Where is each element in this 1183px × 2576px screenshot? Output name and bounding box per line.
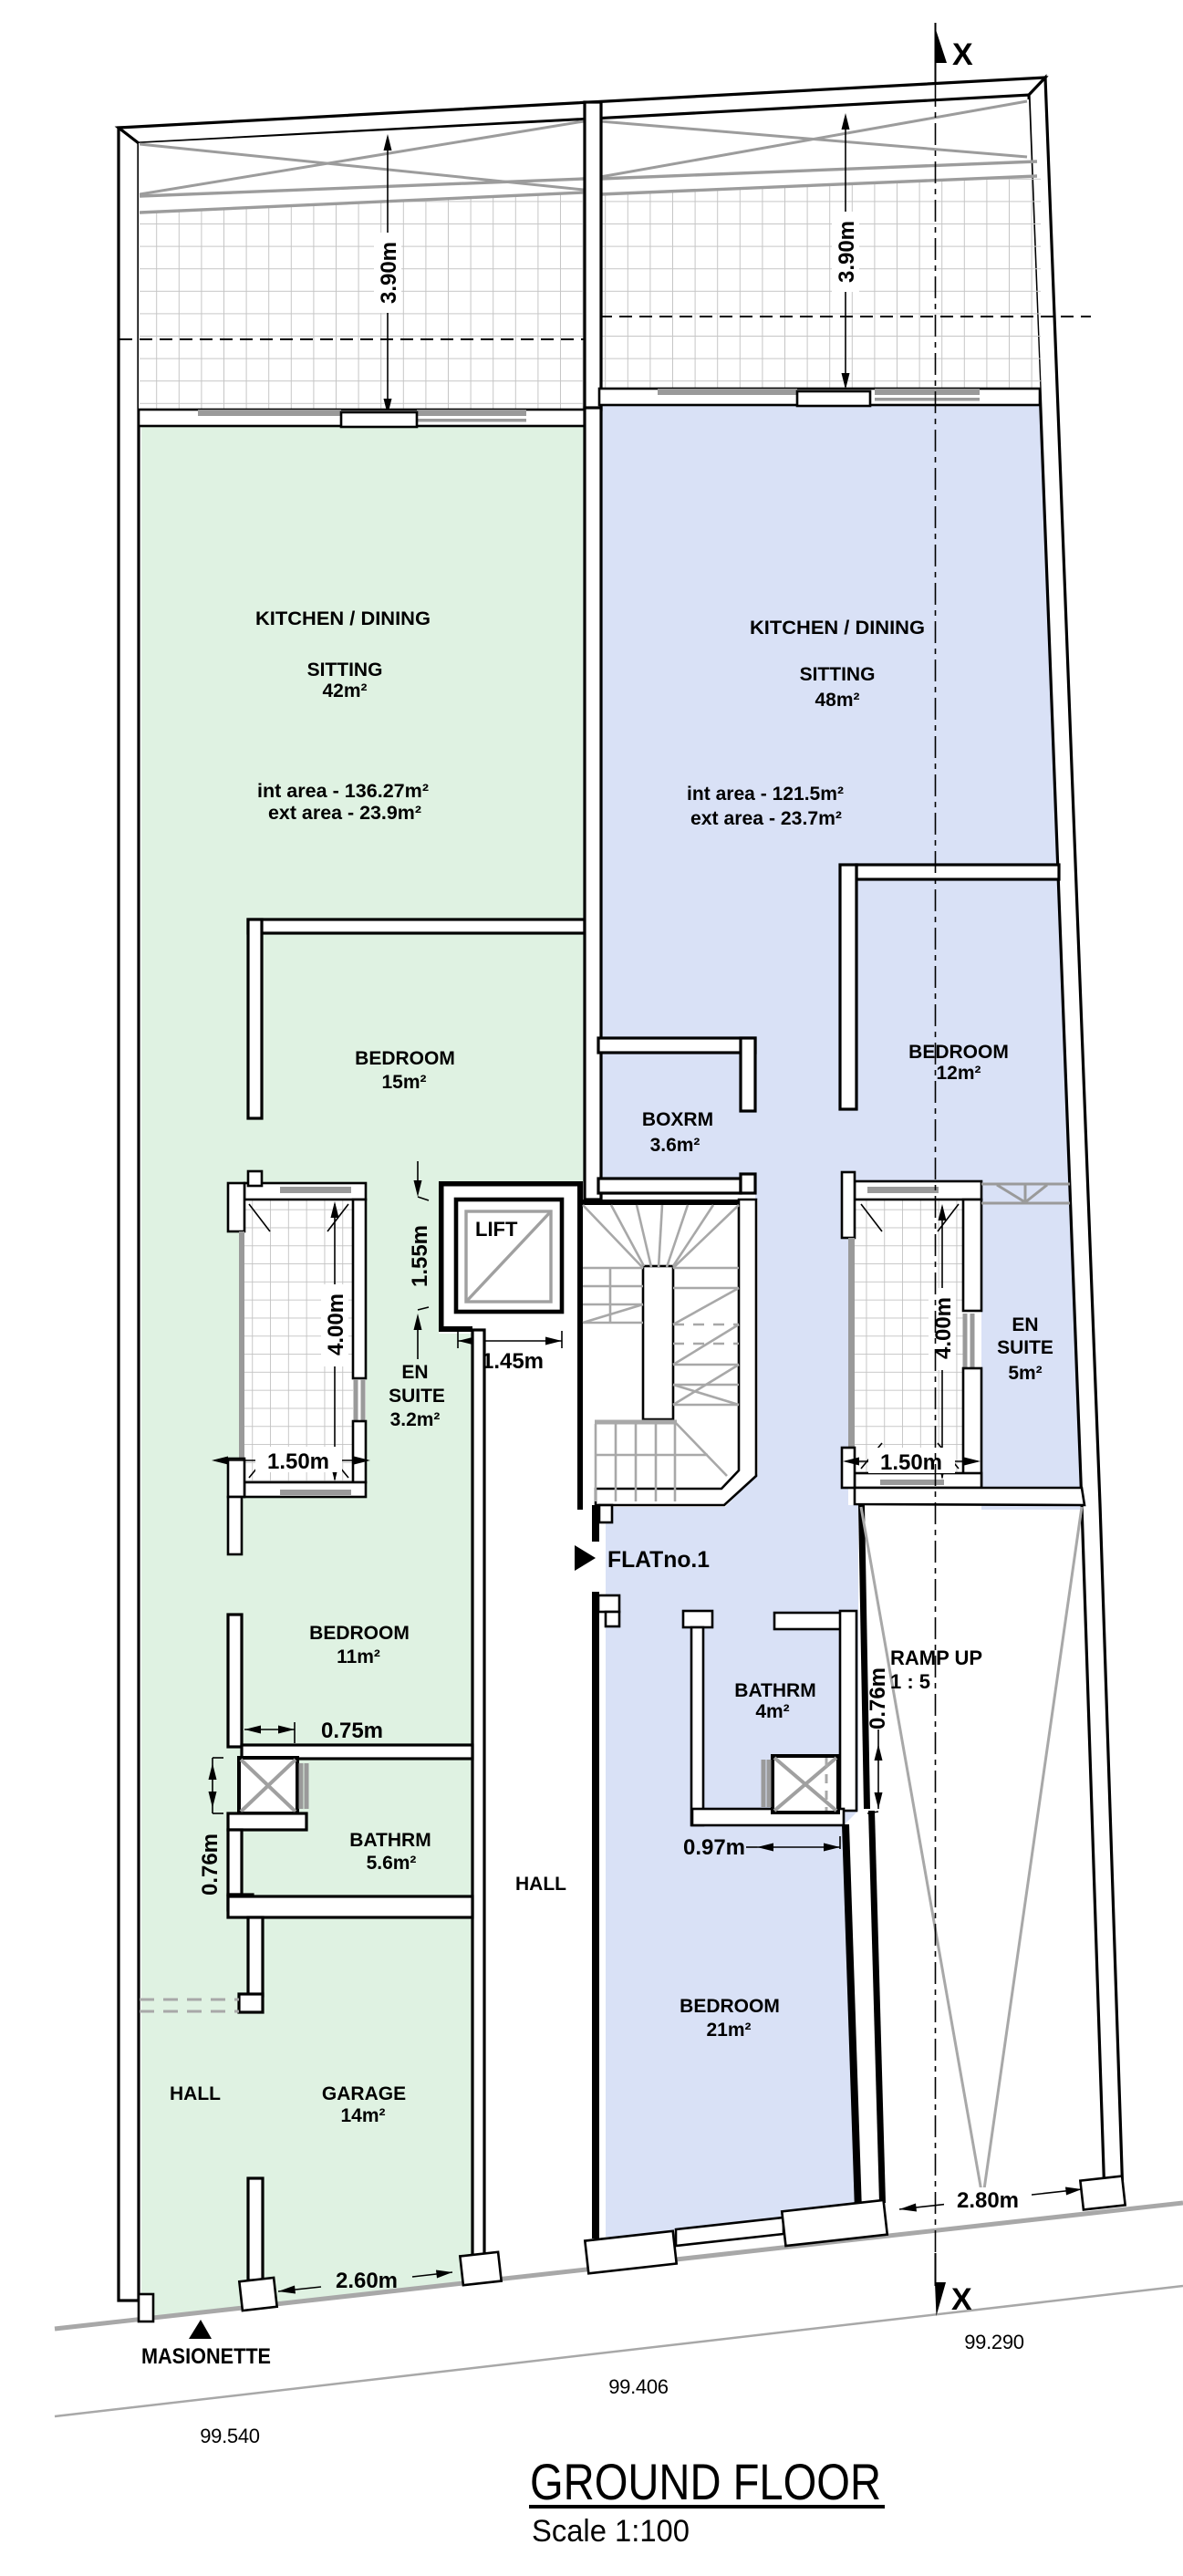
svg-text:GARAGE: GARAGE — [322, 2083, 406, 2104]
svg-text:ext area - 23.7m²: ext area - 23.7m² — [690, 808, 842, 829]
svg-text:FLATno.1: FLATno.1 — [607, 1547, 710, 1573]
svg-text:RAMP UP: RAMP UP — [890, 1646, 982, 1669]
svg-text:1 : 5: 1 : 5 — [890, 1670, 930, 1693]
svg-text:HALL: HALL — [515, 1874, 566, 1895]
svg-text:SITTING: SITTING — [307, 660, 383, 680]
svg-text:14m²: 14m² — [340, 2105, 385, 2126]
svg-text:GROUND FLOOR: GROUND FLOOR — [530, 2453, 881, 2510]
svg-text:SUITE: SUITE — [389, 1386, 445, 1407]
svg-text:BEDROOM: BEDROOM — [309, 1623, 410, 1644]
svg-text:0.75m: 0.75m — [321, 1719, 383, 1743]
svg-text:int area - 121.5m²: int area - 121.5m² — [687, 784, 844, 805]
svg-text:2.80m: 2.80m — [957, 2188, 1019, 2213]
svg-text:SITTING: SITTING — [800, 664, 876, 685]
svg-text:MASIONETTE: MASIONETTE — [141, 2344, 271, 2369]
svg-text:ext area - 23.9m²: ext area - 23.9m² — [268, 803, 421, 824]
svg-text:KITCHEN / DINING: KITCHEN / DINING — [750, 618, 925, 639]
svg-text:0.76m: 0.76m — [198, 1833, 223, 1896]
svg-text:EN: EN — [401, 1362, 428, 1383]
svg-text:0.76m: 0.76m — [866, 1667, 890, 1729]
svg-text:KITCHEN / DINING: KITCHEN / DINING — [255, 608, 431, 629]
svg-text:99.290: 99.290 — [964, 2331, 1024, 2353]
svg-text:X: X — [951, 2282, 972, 2317]
svg-text:BATHRM: BATHRM — [349, 1830, 431, 1851]
svg-text:2.60m: 2.60m — [336, 2269, 398, 2293]
svg-text:X: X — [952, 37, 973, 72]
svg-text:21m²: 21m² — [706, 2020, 751, 2041]
svg-text:5m²: 5m² — [1008, 1363, 1042, 1384]
svg-text:BEDROOM: BEDROOM — [908, 1042, 1009, 1063]
svg-text:4.00m: 4.00m — [324, 1293, 348, 1356]
svg-text:BEDROOM: BEDROOM — [680, 1996, 780, 2017]
svg-text:15m²: 15m² — [381, 1072, 426, 1093]
svg-text:1.45m: 1.45m — [482, 1349, 544, 1374]
svg-text:SUITE: SUITE — [997, 1337, 1053, 1358]
svg-text:0.97m: 0.97m — [683, 1835, 745, 1860]
svg-text:EN: EN — [1012, 1314, 1038, 1335]
svg-text:BATHRM: BATHRM — [734, 1680, 815, 1701]
svg-text:1.55m: 1.55m — [408, 1225, 432, 1287]
svg-text:4m²: 4m² — [755, 1701, 789, 1722]
svg-text:3.6m²: 3.6m² — [650, 1135, 700, 1156]
svg-text:HALL: HALL — [170, 2083, 221, 2104]
svg-text:99.406: 99.406 — [608, 2375, 669, 2398]
svg-text:3.2m²: 3.2m² — [390, 1409, 441, 1430]
svg-text:3.90m: 3.90m — [377, 242, 401, 304]
svg-text:12m²: 12m² — [936, 1063, 981, 1084]
svg-text:48m²: 48m² — [815, 690, 859, 711]
svg-text:BEDROOM: BEDROOM — [355, 1048, 455, 1069]
svg-text:5.6m²: 5.6m² — [367, 1853, 417, 1874]
svg-text:42m²: 42m² — [322, 680, 367, 701]
svg-text:int area - 136.27m²: int area - 136.27m² — [257, 781, 429, 802]
svg-text:Scale 1:100: Scale 1:100 — [532, 2514, 690, 2549]
svg-text:LIFT: LIFT — [475, 1218, 518, 1241]
svg-text:1.50m: 1.50m — [267, 1449, 329, 1474]
svg-text:11m²: 11m² — [337, 1646, 380, 1667]
svg-text:BOXRM: BOXRM — [642, 1109, 713, 1130]
svg-text:1.50m: 1.50m — [880, 1450, 942, 1475]
svg-text:99.540: 99.540 — [200, 2425, 260, 2447]
svg-text:3.90m: 3.90m — [835, 221, 859, 283]
